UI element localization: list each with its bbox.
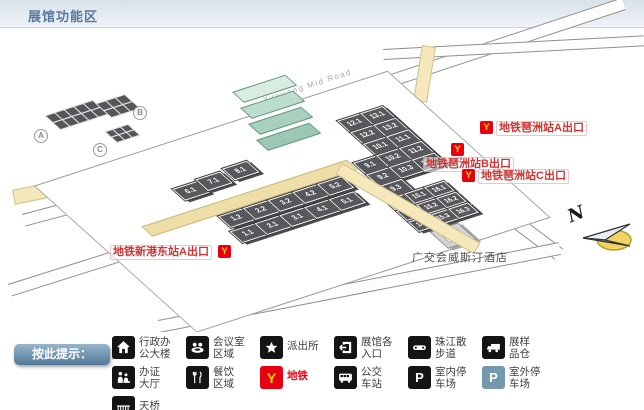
legend-prompt-badge: 按此提示： bbox=[14, 344, 110, 365]
legend-item-riverside-walkway: 珠江散步道 bbox=[408, 336, 482, 361]
westin-hotel-label: 广交会威斯汀酒店 bbox=[412, 249, 508, 265]
legend-panel: 按此提示： 行政办公大楼 会议室区域 派出所 bbox=[0, 332, 644, 410]
legend-item-metro: Y 地铁 bbox=[260, 366, 334, 391]
conference-building bbox=[232, 92, 233, 93]
legend-item-outdoor-parking: P 室外停车场 bbox=[482, 366, 556, 391]
page-title: 展馆功能区 bbox=[28, 6, 98, 25]
legend-item-meeting-room: 会议室区域 bbox=[186, 336, 260, 361]
indoor-parking-icon: P bbox=[408, 366, 431, 389]
marker-c: C bbox=[93, 143, 107, 157]
metro-icon: Y bbox=[480, 121, 493, 134]
police-station-icon bbox=[260, 336, 283, 359]
marker-a: A bbox=[34, 129, 48, 143]
legend-item-certificate-hall: 办证大厅 bbox=[112, 366, 186, 391]
compass-arrow-icon bbox=[580, 216, 638, 258]
metro-icon: Y bbox=[451, 143, 464, 156]
legend-item-footbridge: 天桥 bbox=[112, 396, 186, 410]
venue-plane: 1.12.13.14.15.11.22.23.24.25.26.17.18.11… bbox=[70, 195, 72, 196]
legend-item-hall-entrance: 展馆各入口 bbox=[334, 336, 408, 361]
building-cluster-c bbox=[106, 125, 139, 142]
metro-icon: Y bbox=[260, 366, 283, 389]
certificate-hall-icon bbox=[112, 366, 135, 389]
legend-item-admin-building: 行政办公大楼 bbox=[112, 336, 186, 361]
footbridge-icon bbox=[112, 396, 135, 410]
meeting-room-icon bbox=[186, 336, 209, 359]
legend-items: 行政办公大楼 会议室区域 派出所 展馆各入口 bbox=[112, 336, 556, 410]
legend-item-dining-area: 餐饮区域 bbox=[186, 366, 260, 391]
riverside-walkway-icon bbox=[408, 336, 431, 359]
marker-b: B bbox=[133, 106, 147, 120]
exhibition-map-page: 展馆功能区 Yuejiang Mid Road 会展东路 1.12.13.14.… bbox=[0, 0, 644, 410]
metro-exit-pazhou-c: 地铁琶洲站C出口 bbox=[478, 169, 569, 184]
legend-item-indoor-parking: P 室内停车场 bbox=[408, 366, 482, 391]
admin-building-icon bbox=[112, 336, 135, 359]
outdoor-parking-icon: P bbox=[482, 366, 505, 389]
metro-exit-pazhou-a: 地铁琶洲站A出口 bbox=[496, 121, 587, 136]
metro-icon: Y bbox=[462, 169, 475, 182]
legend-item-police-station: 派出所 bbox=[260, 336, 334, 361]
hall-entrance-icon bbox=[334, 336, 357, 359]
dining-area-icon bbox=[186, 366, 209, 389]
metro-exit-xingangdong-a: 地铁新港东站A出口 bbox=[110, 245, 212, 260]
bus-station-icon bbox=[334, 366, 357, 389]
sample-warehouse-icon bbox=[482, 336, 505, 359]
legend-item-sample-warehouse: 展样品仓 bbox=[482, 336, 556, 361]
metro-icon: Y bbox=[218, 245, 231, 258]
legend-item-bus-station: 公交车站 bbox=[334, 366, 408, 391]
